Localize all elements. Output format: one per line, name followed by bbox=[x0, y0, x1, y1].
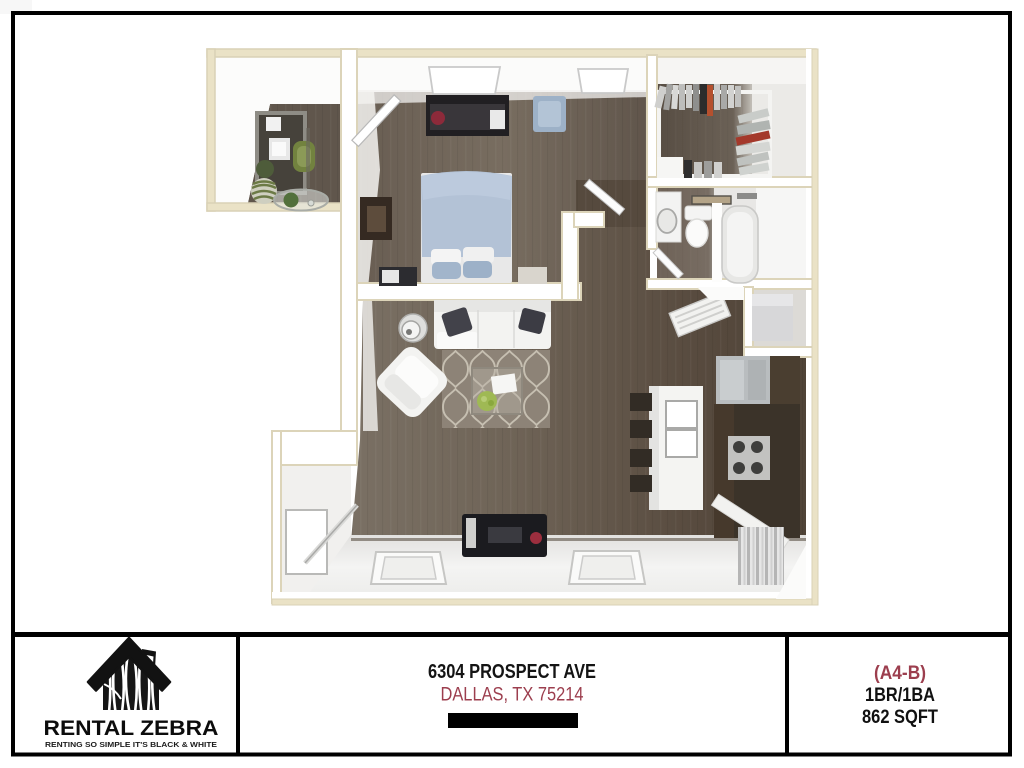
svg-text:DALLAS, TX 75214: DALLAS, TX 75214 bbox=[441, 685, 584, 706]
svg-text:RENTING SO SIMPLE IT'S BLACK &: RENTING SO SIMPLE IT'S BLACK & WHITE bbox=[45, 742, 217, 749]
svg-text:6304 PROSPECT AVE: 6304 PROSPECT AVE bbox=[428, 661, 596, 683]
svg-text:1BR/1BA: 1BR/1BA bbox=[865, 685, 935, 706]
svg-text:(A4-B): (A4-B) bbox=[874, 663, 926, 684]
svg-text:RENTAL ZEBRA: RENTAL ZEBRA bbox=[44, 716, 219, 740]
svg-text:862 SQFT: 862 SQFT bbox=[862, 707, 938, 728]
